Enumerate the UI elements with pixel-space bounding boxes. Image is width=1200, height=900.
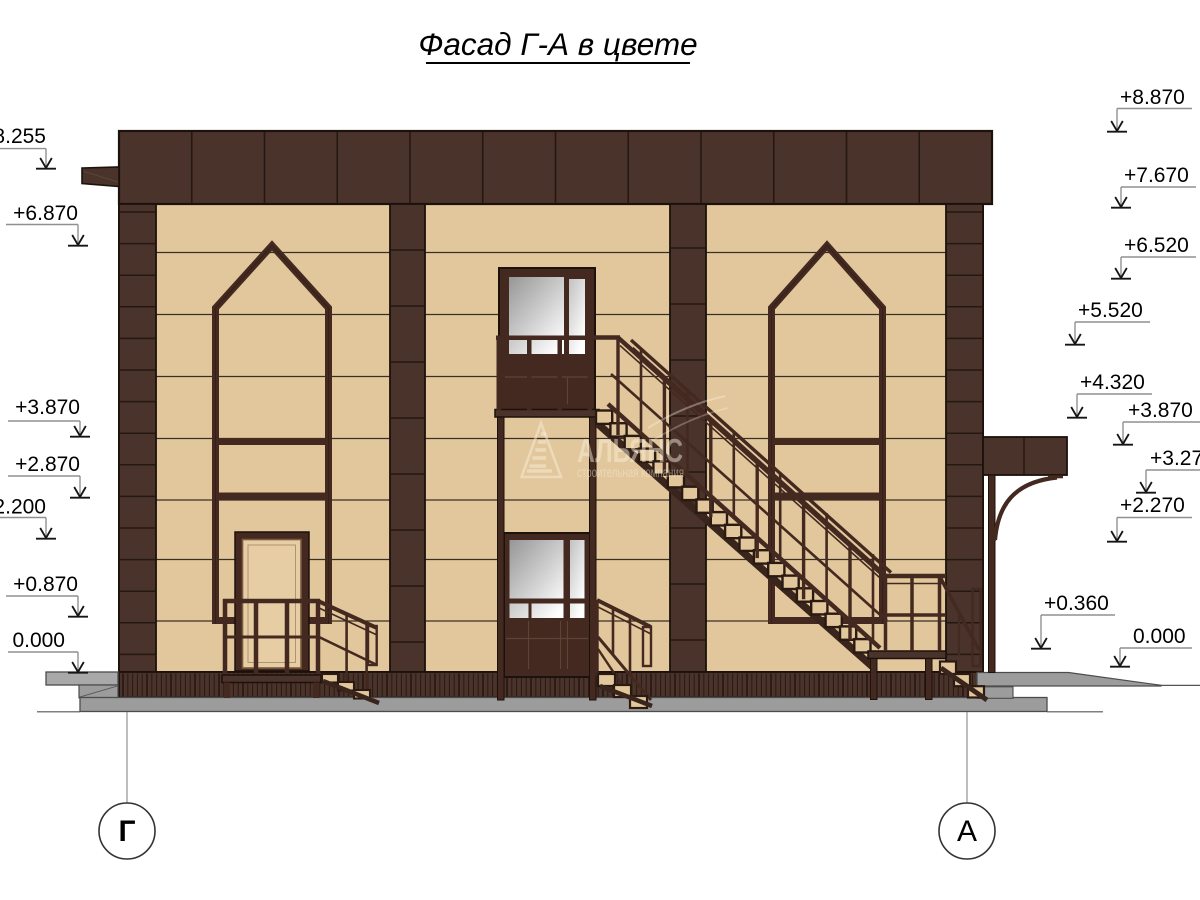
svg-text:+8.255: +8.255 (0, 125, 46, 148)
svg-text:строительная компания: строительная компания (577, 465, 684, 480)
svg-text:А: А (957, 815, 977, 848)
svg-text:+3.27: +3.27 (1150, 447, 1200, 470)
svg-text:+7.670: +7.670 (1124, 164, 1189, 187)
svg-text:+6.520: +6.520 (1124, 234, 1189, 257)
svg-text:+2.870: +2.870 (15, 453, 80, 476)
svg-text:+8.870: +8.870 (1120, 86, 1185, 109)
svg-text:АЛЬЯНС: АЛЬЯНС (577, 432, 683, 469)
svg-text:+3.870: +3.870 (1128, 399, 1193, 422)
svg-text:+0.870: +0.870 (13, 573, 78, 596)
svg-text:+2.270: +2.270 (1120, 494, 1185, 517)
svg-text:0.000: 0.000 (1133, 625, 1186, 648)
svg-text:Фасад Г-А в цвете: Фасад Г-А в цвете (418, 26, 697, 62)
svg-text:+4.320: +4.320 (1080, 371, 1145, 394)
svg-text:+3.870: +3.870 (15, 396, 80, 419)
svg-text:+5.520: +5.520 (1078, 299, 1143, 322)
svg-text:Г: Г (118, 815, 135, 848)
svg-text:+6.870: +6.870 (13, 202, 78, 225)
svg-text:+2.200: +2.200 (0, 496, 46, 519)
svg-text:+0.360: +0.360 (1044, 592, 1109, 615)
svg-text:0.000: 0.000 (12, 629, 65, 652)
